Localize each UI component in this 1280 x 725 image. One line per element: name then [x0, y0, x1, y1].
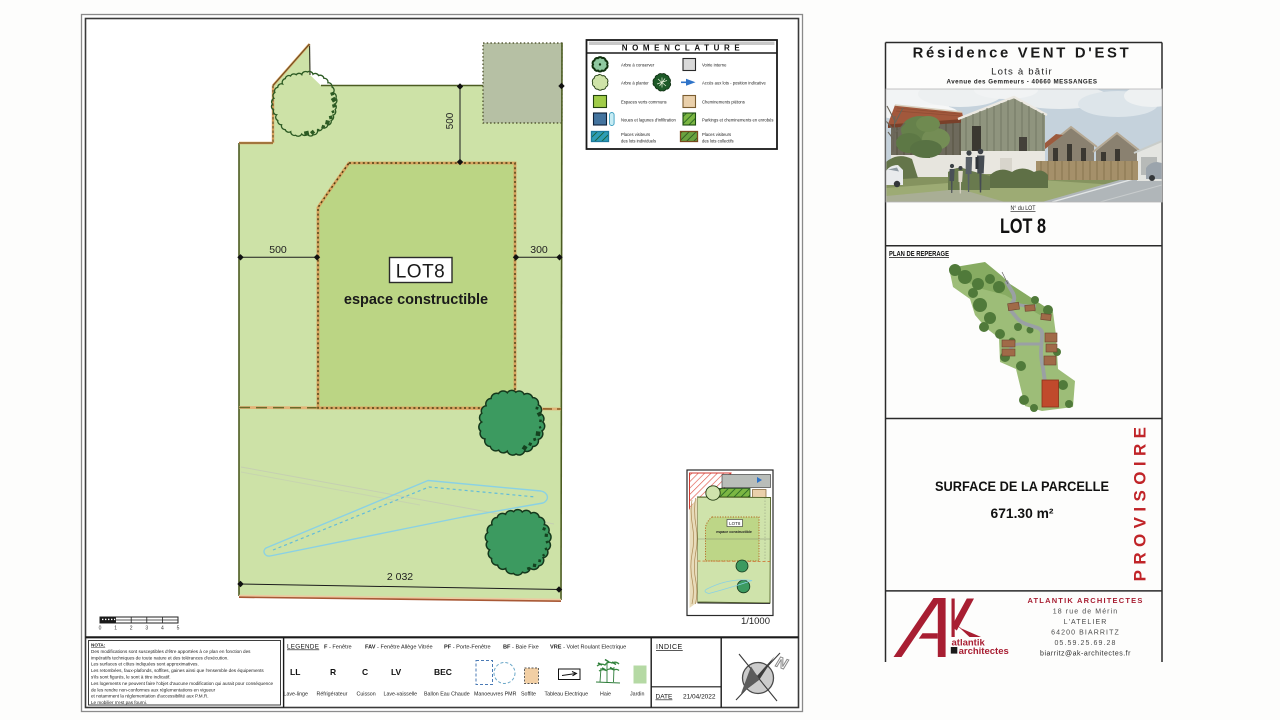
- svg-text:Les surfaces et côtes indiquée: Les surfaces et côtes indiquées sont app…: [91, 662, 199, 667]
- svg-text:LOT8: LOT8: [396, 262, 446, 283]
- svg-text:Des modifications sont suscept: Des modifications sont susceptibles d'êt…: [91, 649, 251, 654]
- svg-text:NOTA:: NOTA:: [91, 643, 106, 648]
- svg-text:F - Fenêtre: F - Fenêtre: [324, 645, 352, 651]
- svg-text:Espaces verts communs: Espaces verts communs: [621, 100, 667, 105]
- svg-text:impératifs techniques de toute: impératifs techniques de toute nature et…: [91, 655, 229, 660]
- svg-text:Jardin: Jardin: [630, 692, 644, 698]
- svg-text:1/1000: 1/1000: [741, 616, 770, 627]
- svg-text:21/04/2022: 21/04/2022: [683, 694, 716, 701]
- svg-text:Lave-vaisselle: Lave-vaisselle: [384, 692, 418, 698]
- svg-text:architectes: architectes: [959, 646, 1009, 657]
- svg-text:3: 3: [145, 626, 148, 632]
- svg-text:espace constructible: espace constructible: [344, 292, 488, 308]
- svg-text:Résidence VENT D'EST: Résidence VENT D'EST: [913, 46, 1132, 62]
- svg-text:300: 300: [530, 244, 548, 256]
- svg-text:ATLANTIK ARCHITECTES: ATLANTIK ARCHITECTES: [1027, 596, 1143, 605]
- svg-text:PROVISOIRE: PROVISOIRE: [1131, 422, 1150, 582]
- svg-text:5: 5: [177, 626, 180, 632]
- svg-text:1: 1: [114, 626, 117, 632]
- svg-text:LEGENDE: LEGENDE: [287, 644, 319, 651]
- svg-text:Accès aux lots - position indi: Accès aux lots - position indicative: [702, 80, 766, 85]
- svg-text:500: 500: [269, 244, 287, 256]
- svg-text:Places visiteurs: Places visiteurs: [621, 132, 650, 137]
- svg-text:INDICE: INDICE: [656, 644, 683, 651]
- svg-text:s'ils sont figurés, le sont à: s'ils sont figurés, le sont à titre indi…: [91, 675, 171, 680]
- svg-text:LOT8: LOT8: [729, 521, 741, 526]
- svg-text:biarritz@ak-architectes.fr: biarritz@ak-architectes.fr: [1040, 650, 1131, 657]
- svg-text:LV: LV: [391, 667, 402, 677]
- svg-text:BF - Baie Fixe: BF - Baie Fixe: [503, 645, 539, 651]
- svg-text:de les rendre non-conformes au: de les rendre non-conformes aux réglemen…: [91, 687, 216, 692]
- svg-text:L'ATELIER: L'ATELIER: [1064, 619, 1108, 626]
- svg-text:PF - Porte-Fenêtre: PF - Porte-Fenêtre: [444, 645, 491, 651]
- svg-text:Cuisson: Cuisson: [357, 692, 376, 698]
- svg-text:64200 BIARRITZ: 64200 BIARRITZ: [1051, 630, 1120, 637]
- svg-text:Le mobilier n'est pas fourni.: Le mobilier n'est pas fourni.: [91, 700, 147, 705]
- svg-text:Lots à bâtir: Lots à bâtir: [991, 67, 1053, 78]
- svg-text:Lave-linge: Lave-linge: [284, 692, 308, 698]
- svg-text:FAV - Fenêtre Allège Vitrée: FAV - Fenêtre Allège Vitrée: [365, 645, 433, 651]
- svg-text:Cheminements piétons: Cheminements piétons: [702, 100, 745, 105]
- svg-text:671.30 m²: 671.30 m²: [991, 506, 1054, 521]
- svg-text:Voirie interne: Voirie interne: [702, 63, 727, 68]
- svg-text:18 rue de Mérin: 18 rue de Mérin: [1053, 609, 1119, 616]
- svg-text:Manoeuvres PMR: Manoeuvres PMR: [474, 692, 517, 698]
- svg-text:VRE - Volet Roulant Electrique: VRE - Volet Roulant Electrique: [550, 645, 626, 651]
- svg-text:2: 2: [130, 626, 133, 632]
- svg-text:2 032: 2 032: [387, 571, 413, 583]
- svg-text:Noues et lagunes d'infiltratio: Noues et lagunes d'infiltration: [621, 118, 676, 123]
- svg-text:espace constructible: espace constructible: [716, 530, 752, 534]
- svg-text:Arbre à conserver: Arbre à conserver: [621, 63, 655, 68]
- svg-text:0: 0: [99, 626, 102, 632]
- svg-text:4: 4: [161, 626, 164, 632]
- svg-text:C: C: [362, 667, 368, 677]
- svg-text:05.59.25.69.28: 05.59.25.69.28: [1054, 640, 1116, 647]
- svg-text:Arbre à planter: Arbre à planter: [621, 80, 649, 85]
- svg-text:PLAN DE REPERAGE: PLAN DE REPERAGE: [889, 249, 949, 258]
- svg-text:Soffite: Soffite: [521, 692, 536, 698]
- svg-text:des lots individuels: des lots individuels: [621, 138, 656, 143]
- svg-text:500: 500: [445, 112, 456, 129]
- svg-text:Réfrigérateur: Réfrigérateur: [317, 692, 348, 698]
- svg-text:Places visiteurs: Places visiteurs: [702, 132, 731, 137]
- svg-text:Les logements ne peuvent faire: Les logements ne peuvent faire l'objet d…: [91, 681, 273, 686]
- svg-text:BEC: BEC: [434, 667, 452, 677]
- svg-text:Tableau Electrique: Tableau Electrique: [545, 692, 589, 698]
- svg-text:Parkings et cheminements en en: Parkings et cheminements en enrobés: [702, 118, 773, 123]
- svg-text:des lots collectifs: des lots collectifs: [702, 138, 734, 143]
- svg-text:NOMENCLATURE: NOMENCLATURE: [622, 44, 745, 53]
- svg-text:Les retombées, faux-plafonds,: Les retombées, faux-plafonds, soffites, …: [91, 668, 264, 673]
- svg-text:Ballon Eau Chaude: Ballon Eau Chaude: [424, 692, 470, 698]
- svg-text:SURFACE DE LA PARCELLE: SURFACE DE LA PARCELLE: [935, 479, 1109, 494]
- svg-text:N° du LOT: N° du LOT: [1011, 204, 1036, 212]
- svg-text:Avenue des Gemmeurs - 40660 ME: Avenue des Gemmeurs - 40660 MESSANGES: [946, 79, 1097, 86]
- svg-text:LL: LL: [290, 667, 300, 677]
- svg-text:LOT 8: LOT 8: [1000, 215, 1046, 238]
- svg-text:et notamment la réglementation: et notamment la réglementation d'accessi…: [91, 694, 208, 699]
- svg-text:DATE: DATE: [656, 694, 674, 701]
- svg-text:R: R: [330, 667, 336, 677]
- svg-text:Haie: Haie: [600, 692, 611, 698]
